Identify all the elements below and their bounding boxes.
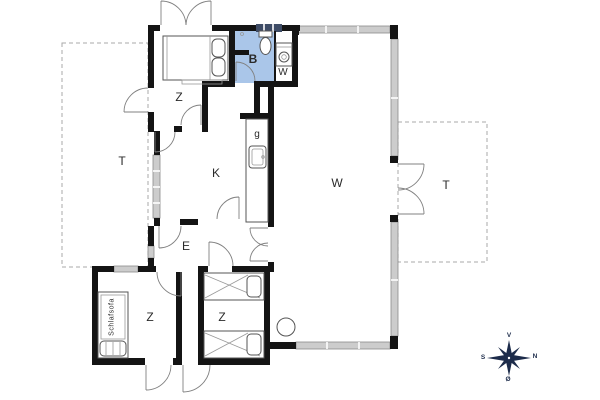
room-label-utility: W: [278, 68, 287, 78]
single-bed-bottom: [204, 331, 264, 358]
room-label-hall: E: [182, 240, 190, 252]
label-sleeper-sofa: Schlafsofa: [109, 298, 116, 336]
compass-label-left: S: [481, 355, 485, 362]
floor-plan: Z T K B W g W E Z Z Schlafsofa T V N S Ø: [0, 0, 600, 400]
single-bed-top: [204, 273, 264, 300]
wood-stove-icon: [277, 318, 295, 336]
room-label-terrace-left: T: [118, 155, 125, 167]
room-label-bathroom: B: [249, 53, 258, 65]
room-label-living: W: [331, 177, 342, 189]
room-label-bedroom-2: Z: [146, 311, 153, 323]
room-label-kitchen: K: [212, 167, 220, 179]
compass-label-down: Ø: [505, 377, 510, 384]
compass-label-up: V: [507, 333, 511, 340]
washing-machine-icon: [276, 43, 292, 66]
terrace-left-outline: [62, 43, 148, 267]
room-label-terrace-right: T: [442, 179, 449, 191]
floor-plan-svg: [0, 0, 600, 400]
compass-label-right: N: [533, 354, 538, 361]
room-label-hob: g: [254, 130, 260, 140]
room-label-bedroom-3: Z: [218, 311, 225, 323]
room-label-bedroom-1: Z: [175, 91, 182, 103]
compass-rose: [487, 340, 531, 376]
double-bed: [163, 36, 228, 84]
